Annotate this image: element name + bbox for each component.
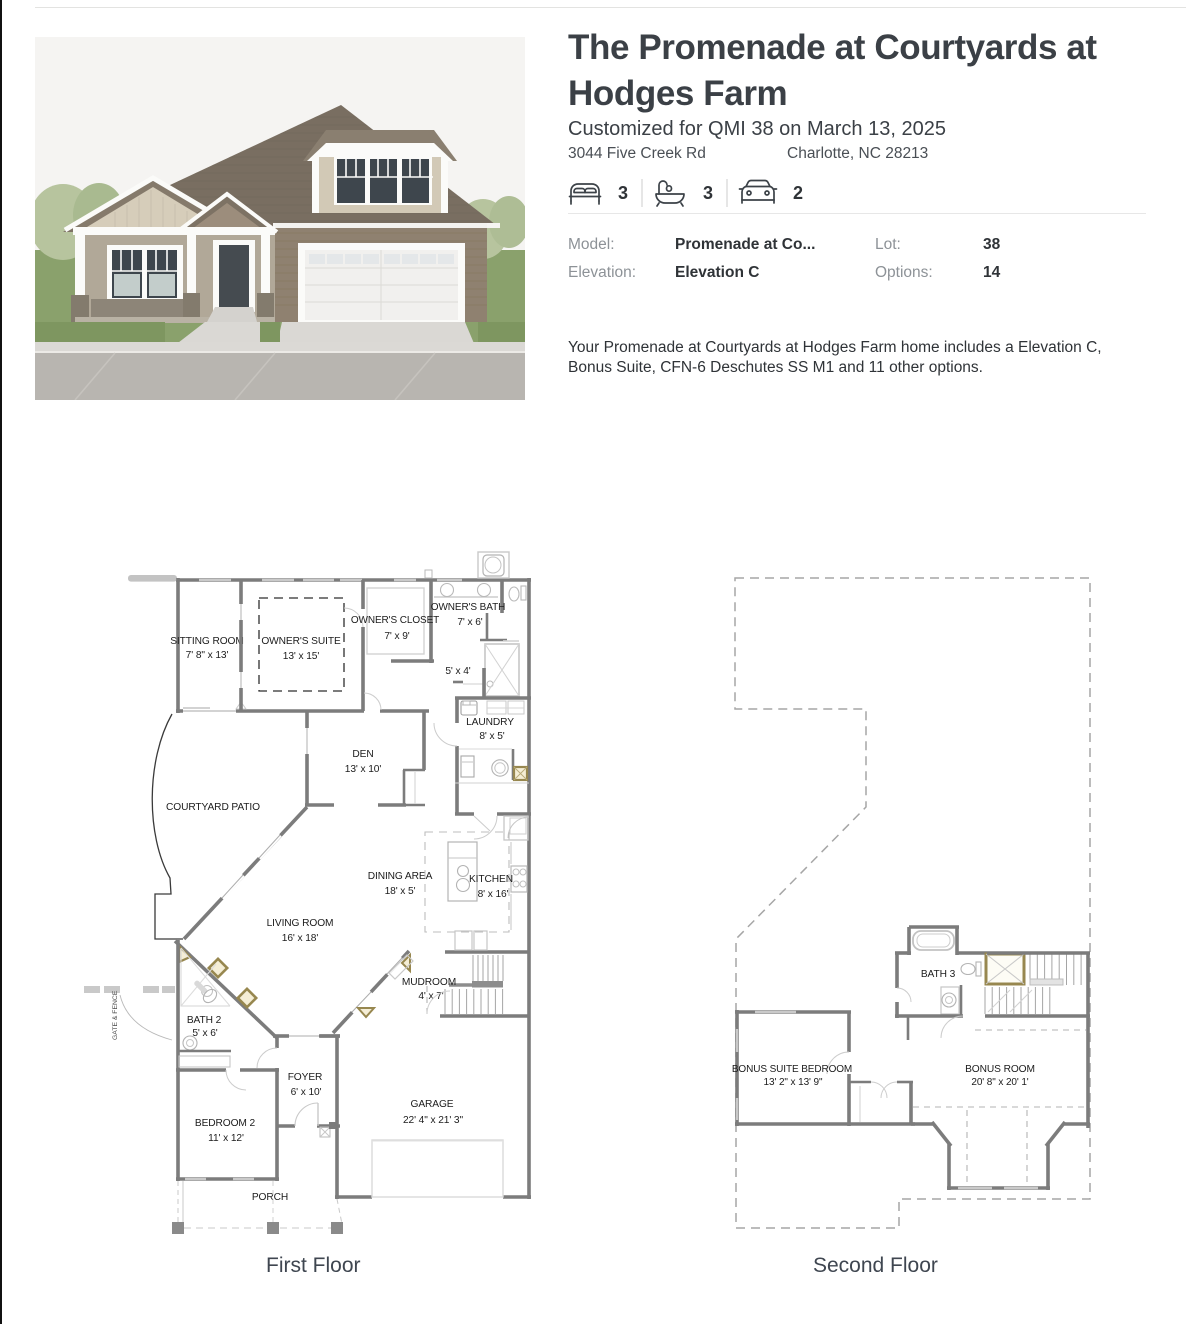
svg-text:8' x 16': 8' x 16' [478, 889, 509, 900]
svg-text:BATH 2: BATH 2 [187, 1015, 222, 1026]
svg-text:18' x 5': 18' x 5' [385, 886, 416, 897]
svg-text:11' x 12': 11' x 12' [208, 1133, 244, 1144]
svg-text:BEDROOM 2: BEDROOM 2 [195, 1118, 256, 1129]
svg-text:13' x 10': 13' x 10' [345, 764, 382, 775]
svg-text:20' 8" x 20' 1': 20' 8" x 20' 1' [971, 1077, 1028, 1088]
svg-text:KITCHEN: KITCHEN [469, 874, 513, 885]
svg-text:7' x 9': 7' x 9' [384, 631, 409, 642]
svg-text:16' x 18': 16' x 18' [282, 933, 319, 944]
svg-text:BONUS SUITE BEDROOM: BONUS SUITE BEDROOM [732, 1064, 852, 1075]
svg-text:3: 3 [618, 183, 628, 203]
svg-text:GARAGE: GARAGE [411, 1099, 454, 1110]
svg-text:3: 3 [703, 183, 713, 203]
svg-text:FOYER: FOYER [288, 1072, 323, 1083]
svg-text:BONUS ROOM: BONUS ROOM [965, 1064, 1035, 1075]
svg-text:22' 4" x 21' 3": 22' 4" x 21' 3" [403, 1115, 464, 1126]
svg-text:OWNER'S CLOSET: OWNER'S CLOSET [351, 615, 439, 626]
svg-text:GATE & FENCE: GATE & FENCE [112, 990, 119, 1040]
svg-text:2: 2 [793, 183, 803, 203]
svg-text:SITTING ROOM: SITTING ROOM [170, 636, 244, 647]
svg-text:OWNER'S BATH: OWNER'S BATH [431, 602, 505, 613]
svg-text:5' x 6': 5' x 6' [192, 1028, 217, 1039]
svg-text:5' x 4': 5' x 4' [445, 666, 470, 677]
svg-text:DINING AREA: DINING AREA [368, 871, 433, 882]
svg-text:13' x 15': 13' x 15' [283, 651, 320, 662]
svg-text:OWNER'S SUITE: OWNER'S SUITE [261, 636, 341, 647]
svg-text:8' x 5': 8' x 5' [479, 731, 504, 742]
svg-text:MUDROOM: MUDROOM [402, 977, 456, 988]
svg-text:DEN: DEN [352, 749, 373, 760]
svg-text:7' x 6': 7' x 6' [457, 617, 482, 628]
svg-text:PORCH: PORCH [252, 1192, 288, 1203]
svg-text:7' 8" x 13': 7' 8" x 13' [186, 650, 229, 661]
svg-text:13' 2" x 13' 9": 13' 2" x 13' 9" [764, 1077, 823, 1088]
svg-text:6' x 10': 6' x 10' [291, 1087, 322, 1098]
svg-text:LIVING ROOM: LIVING ROOM [267, 918, 334, 929]
svg-text:BATH 3: BATH 3 [921, 969, 956, 980]
svg-text:COURTYARD PATIO: COURTYARD PATIO [166, 802, 260, 813]
svg-text:LAUNDRY: LAUNDRY [466, 717, 514, 728]
